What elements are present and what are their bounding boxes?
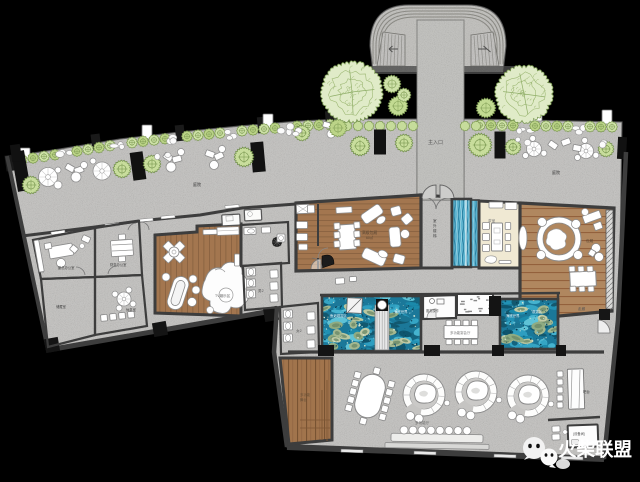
svg-text:庭院: 庭院 bbox=[193, 181, 201, 187]
svg-text:多功能: 多功能 bbox=[300, 392, 311, 397]
svg-text:海底世界: 海底世界 bbox=[506, 313, 520, 318]
svg-text:观赏区: 观赏区 bbox=[532, 309, 543, 314]
svg-text:包厢: 包厢 bbox=[586, 238, 594, 243]
svg-text:副总办公室: 副总办公室 bbox=[58, 265, 75, 270]
svg-text:(设备间): (设备间) bbox=[573, 431, 585, 436]
svg-text:女2: 女2 bbox=[296, 328, 302, 333]
svg-text:男2: 男2 bbox=[258, 288, 264, 293]
svg-text:主入口: 主入口 bbox=[428, 139, 443, 146]
svg-text:鱼池观赏区: 鱼池观赏区 bbox=[330, 313, 348, 318]
svg-text:多功能宴会厅: 多功能宴会厅 bbox=[450, 330, 471, 335]
svg-text:火柴联盟: 火柴联盟 bbox=[558, 439, 633, 460]
svg-text:室: 室 bbox=[433, 218, 437, 223]
svg-text:楼: 楼 bbox=[433, 228, 437, 233]
svg-text:储藏室: 储藏室 bbox=[56, 304, 67, 309]
svg-text:60㎡: 60㎡ bbox=[366, 235, 374, 240]
svg-text:高级包厢: 高级包厢 bbox=[362, 230, 377, 235]
svg-text:梯: 梯 bbox=[433, 233, 437, 238]
svg-text:走廊: 走廊 bbox=[578, 306, 586, 311]
svg-text:服务操作: 服务操作 bbox=[426, 308, 440, 313]
svg-text:茶室: 茶室 bbox=[488, 218, 496, 223]
svg-text:海底世界: 海底世界 bbox=[394, 309, 408, 314]
svg-text:外: 外 bbox=[433, 223, 437, 228]
svg-text:吧台: 吧台 bbox=[583, 389, 590, 394]
svg-text:庭院: 庭院 bbox=[552, 169, 560, 175]
svg-text:舞台: 舞台 bbox=[300, 397, 307, 402]
svg-text:TV娱乐区: TV娱乐区 bbox=[215, 293, 231, 298]
svg-text:多功能厅: 多功能厅 bbox=[415, 420, 430, 425]
svg-text:财务办公室: 财务办公室 bbox=[110, 262, 127, 267]
svg-text:休息室: 休息室 bbox=[126, 307, 137, 312]
